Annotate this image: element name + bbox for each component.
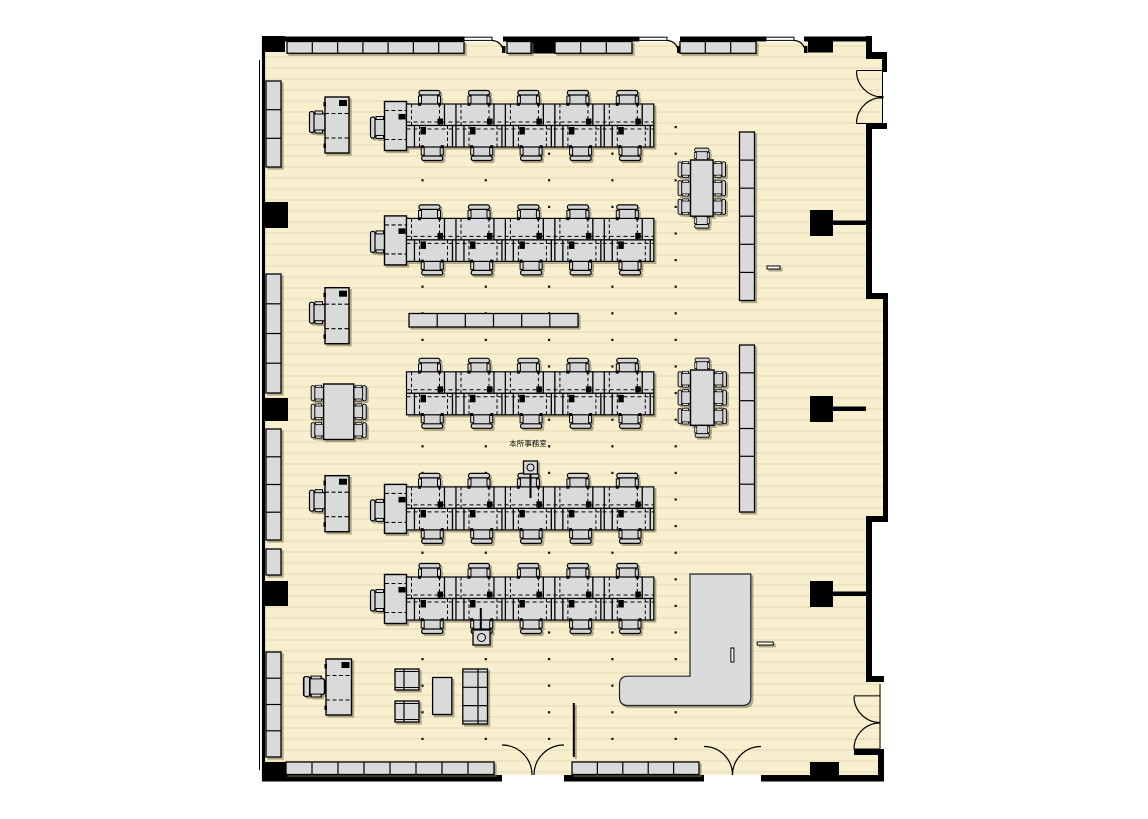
svg-text:本所事務室: 本所事務室 <box>509 438 547 448</box>
